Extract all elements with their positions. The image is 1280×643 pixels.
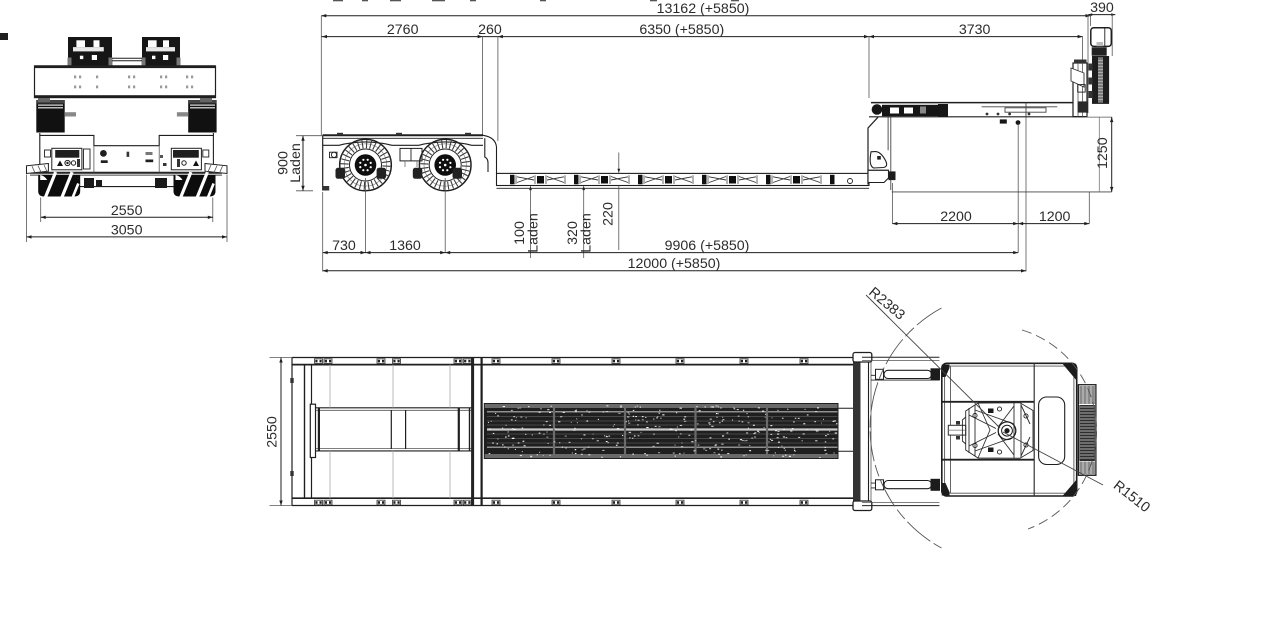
svg-text:3050: 3050 xyxy=(111,223,143,239)
svg-text:Laden: Laden xyxy=(288,143,304,182)
svg-text:12000 (+5850): 12000 (+5850) xyxy=(628,256,721,272)
svg-text:1250: 1250 xyxy=(1095,137,1111,169)
svg-text:Laden: Laden xyxy=(579,213,595,252)
svg-text:6350 (+5850): 6350 (+5850) xyxy=(639,22,724,38)
svg-text:2200: 2200 xyxy=(940,209,972,225)
svg-text:2550: 2550 xyxy=(111,203,143,219)
svg-text:390: 390 xyxy=(1090,0,1114,16)
svg-text:13162 (+5850): 13162 (+5850) xyxy=(657,1,750,17)
svg-text:730: 730 xyxy=(332,238,356,254)
svg-text:Laden: Laden xyxy=(526,213,542,252)
svg-text:1360: 1360 xyxy=(389,238,421,254)
svg-text:9906 (+5850): 9906 (+5850) xyxy=(665,238,750,254)
svg-text:260: 260 xyxy=(478,22,502,38)
svg-text:1200: 1200 xyxy=(1039,209,1071,225)
svg-text:3730: 3730 xyxy=(959,22,991,38)
svg-text:2550: 2550 xyxy=(265,416,281,448)
svg-text:2760: 2760 xyxy=(387,22,419,38)
svg-text:220: 220 xyxy=(601,202,617,226)
